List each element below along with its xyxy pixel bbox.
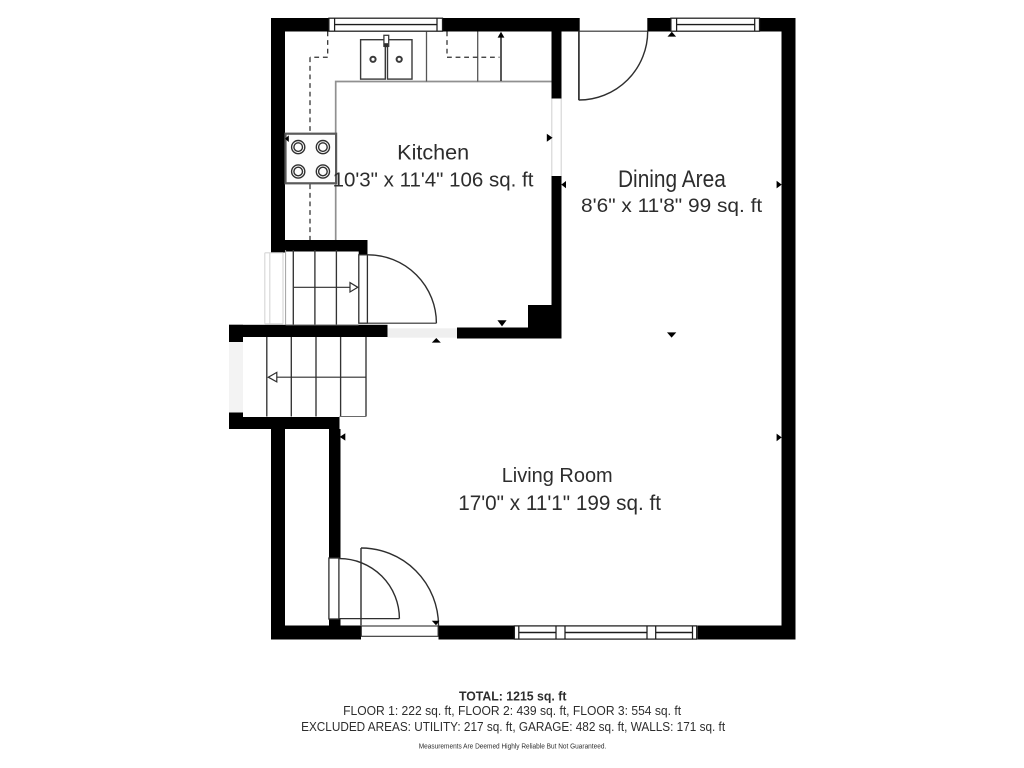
svg-text:Dining Area: Dining Area	[618, 166, 726, 193]
svg-text:Measurements Are Deemed Highly: Measurements Are Deemed Highly Reliable …	[419, 743, 607, 750]
svg-text:17'0" x 11'1" 199 sq. ft: 17'0" x 11'1" 199 sq. ft	[458, 492, 661, 515]
svg-text:Living Room: Living Room	[502, 464, 613, 487]
svg-text:10'3" x 11'4" 106 sq. ft: 10'3" x 11'4" 106 sq. ft	[333, 168, 534, 191]
svg-text:FLOOR 1: 222 sq. ft, FLOOR 2:: FLOOR 1: 222 sq. ft, FLOOR 2: 439 sq. ft…	[343, 703, 681, 718]
svg-text:8'6" x 11'8" 99 sq. ft: 8'6" x 11'8" 99 sq. ft	[581, 195, 763, 217]
svg-text:TOTAL: 1215 sq. ft: TOTAL: 1215 sq. ft	[459, 688, 567, 703]
svg-text:Kitchen: Kitchen	[397, 141, 469, 165]
svg-text:EXCLUDED AREAS: UTILITY: 217 s: EXCLUDED AREAS: UTILITY: 217 sq. ft, GAR…	[301, 719, 725, 734]
